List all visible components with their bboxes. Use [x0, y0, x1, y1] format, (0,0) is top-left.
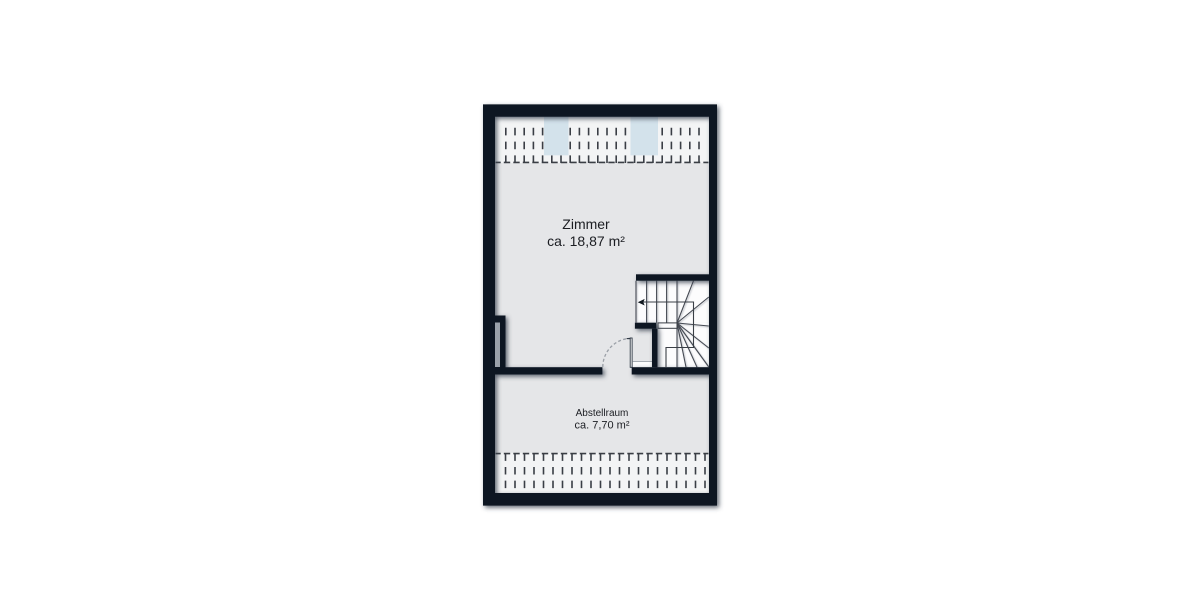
- svg-text:ca. 7,70 m²: ca. 7,70 m²: [574, 420, 629, 432]
- svg-text:Zimmer: Zimmer: [562, 216, 610, 232]
- svg-text:Abstellraum: Abstellraum: [576, 408, 629, 419]
- svg-text:ca. 18,87 m²: ca. 18,87 m²: [547, 233, 625, 249]
